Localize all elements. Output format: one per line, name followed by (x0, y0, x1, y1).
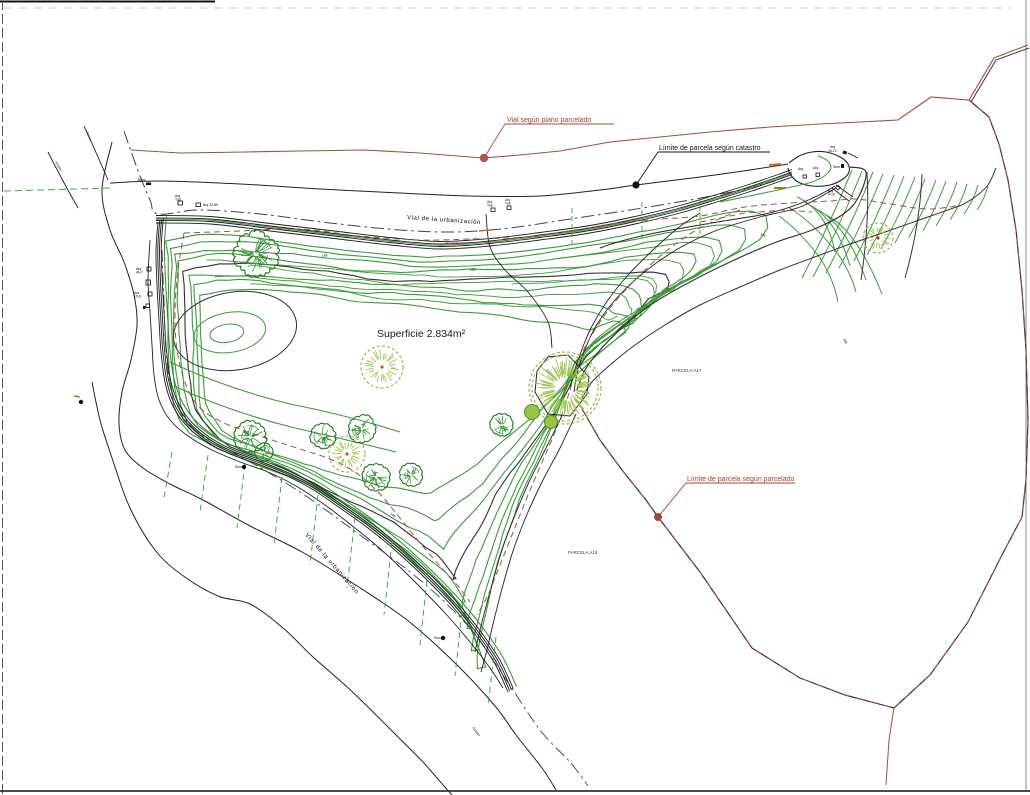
svg-text:Arq: Arq (813, 166, 818, 170)
svg-text:145: 145 (322, 253, 328, 258)
svg-text:4-16: 4-16 (828, 193, 835, 197)
svg-text:150: 150 (470, 268, 476, 272)
svg-text:15-6: 15-6 (134, 295, 141, 299)
svg-text:Arq 32-80: Arq 32-80 (203, 203, 218, 207)
svg-text:Límite de parcela según parcel: Límite de parcela según parcelado (687, 476, 795, 483)
svg-text:Sum: Sum (235, 465, 242, 469)
svg-text:44-10: 44-10 (828, 149, 837, 153)
svg-text:Superficie 2.834m²: Superficie 2.834m² (377, 328, 466, 340)
svg-text:Sum: Sum (833, 165, 840, 169)
svg-text:PARCELA A17: PARCELA A17 (672, 368, 702, 373)
svg-text:Sum: Sum (434, 636, 441, 640)
svg-text:46-7: 46-7 (136, 271, 143, 275)
svg-text:Banc: Banc (138, 178, 146, 182)
svg-text:Arq: Arq (798, 167, 803, 171)
svg-text:PARCELA A18: PARCELA A18 (568, 550, 598, 555)
svg-text:Terraplén: Terraplén (443, 241, 464, 247)
svg-text:Tub: Tub (505, 202, 511, 206)
svg-text:Tub: Tub (487, 204, 493, 208)
svg-text:Tub: Tub (175, 198, 181, 202)
svg-text:Límite de parcela según catast: Límite de parcela según catastro (659, 145, 761, 152)
svg-text:Vial según plano parcelado: Vial según plano parcelado (507, 117, 591, 124)
